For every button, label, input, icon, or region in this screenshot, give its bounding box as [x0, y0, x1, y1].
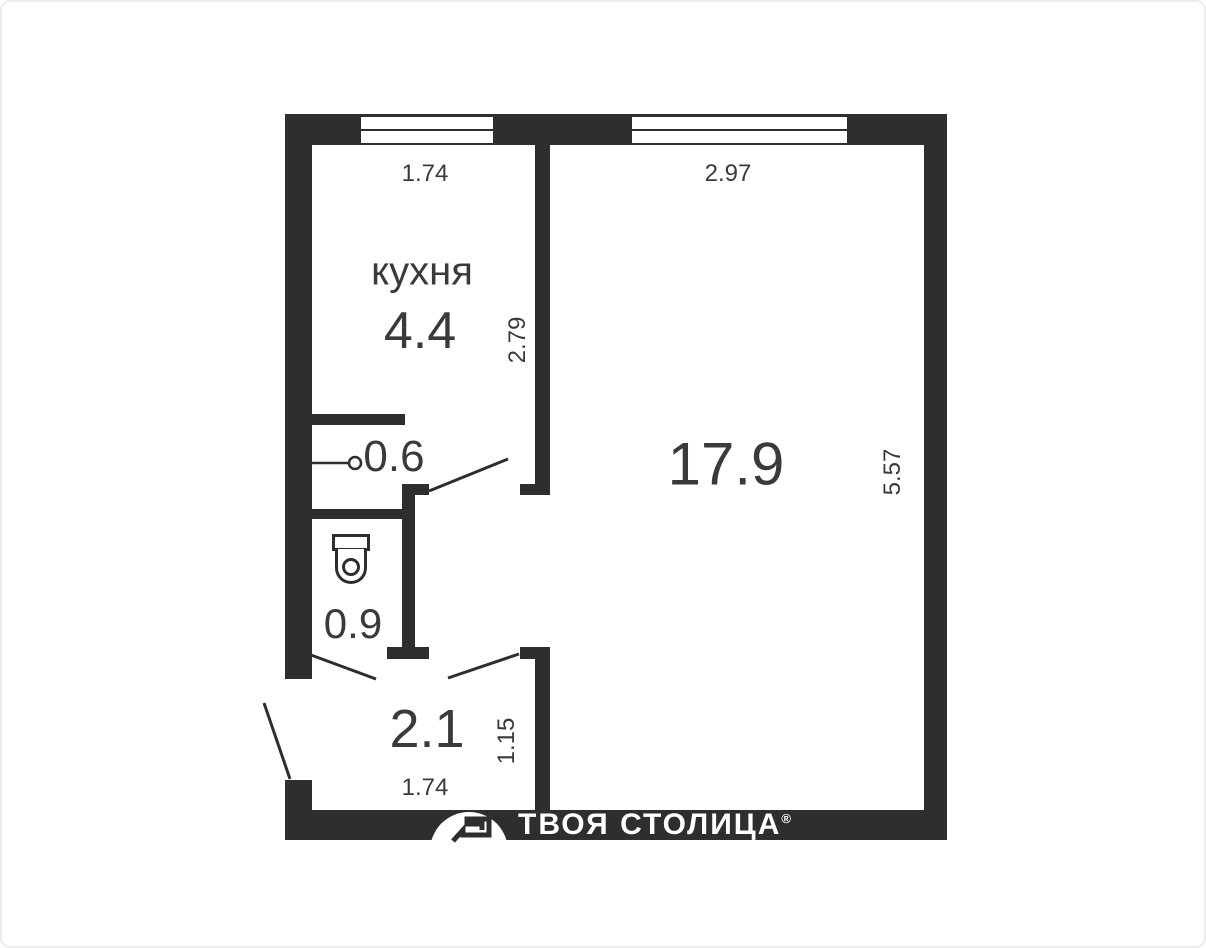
- dim-label-hallway-depth: 1.15: [493, 718, 521, 765]
- closet-leader-circle: [349, 457, 361, 469]
- dim-label-kitchen-depth: 2.79: [504, 317, 532, 364]
- agency-name: ТВОЯ СТОЛИЦА: [518, 808, 781, 841]
- dim-label-hallway-width: 1.74: [402, 774, 449, 802]
- area-label-hallway: 2.1: [389, 698, 464, 760]
- room-label-kitchen: кухня: [371, 250, 473, 295]
- door-swing-overlay: [2, 2, 1206, 948]
- dim-label-kitchen-width: 1.74: [402, 160, 449, 188]
- door-swing-kitchen: [429, 459, 508, 491]
- registered-mark: ®: [781, 811, 791, 826]
- logo-text: ТВОЯ СТОЛИЦА®: [518, 808, 791, 842]
- area-label-bathroom: 0.9: [324, 600, 382, 648]
- door-swing-entry: [264, 703, 290, 779]
- area-label-kitchen: 4.4: [384, 301, 456, 361]
- area-label-living-room: 17.9: [668, 430, 785, 499]
- dim-label-room-depth: 5.57: [879, 449, 907, 496]
- floor-plan-page: 1.74 2.97 2.79 5.57 1.15 1.74 кухня 4.4 …: [0, 0, 1206, 948]
- door-swing-room: [448, 654, 519, 678]
- house-icon: [450, 814, 496, 844]
- dim-label-room-width: 2.97: [705, 160, 752, 188]
- area-label-closet: 0.6: [363, 432, 424, 482]
- door-swing-bathroom: [311, 655, 376, 679]
- toilet-bowl-circle: [342, 558, 360, 576]
